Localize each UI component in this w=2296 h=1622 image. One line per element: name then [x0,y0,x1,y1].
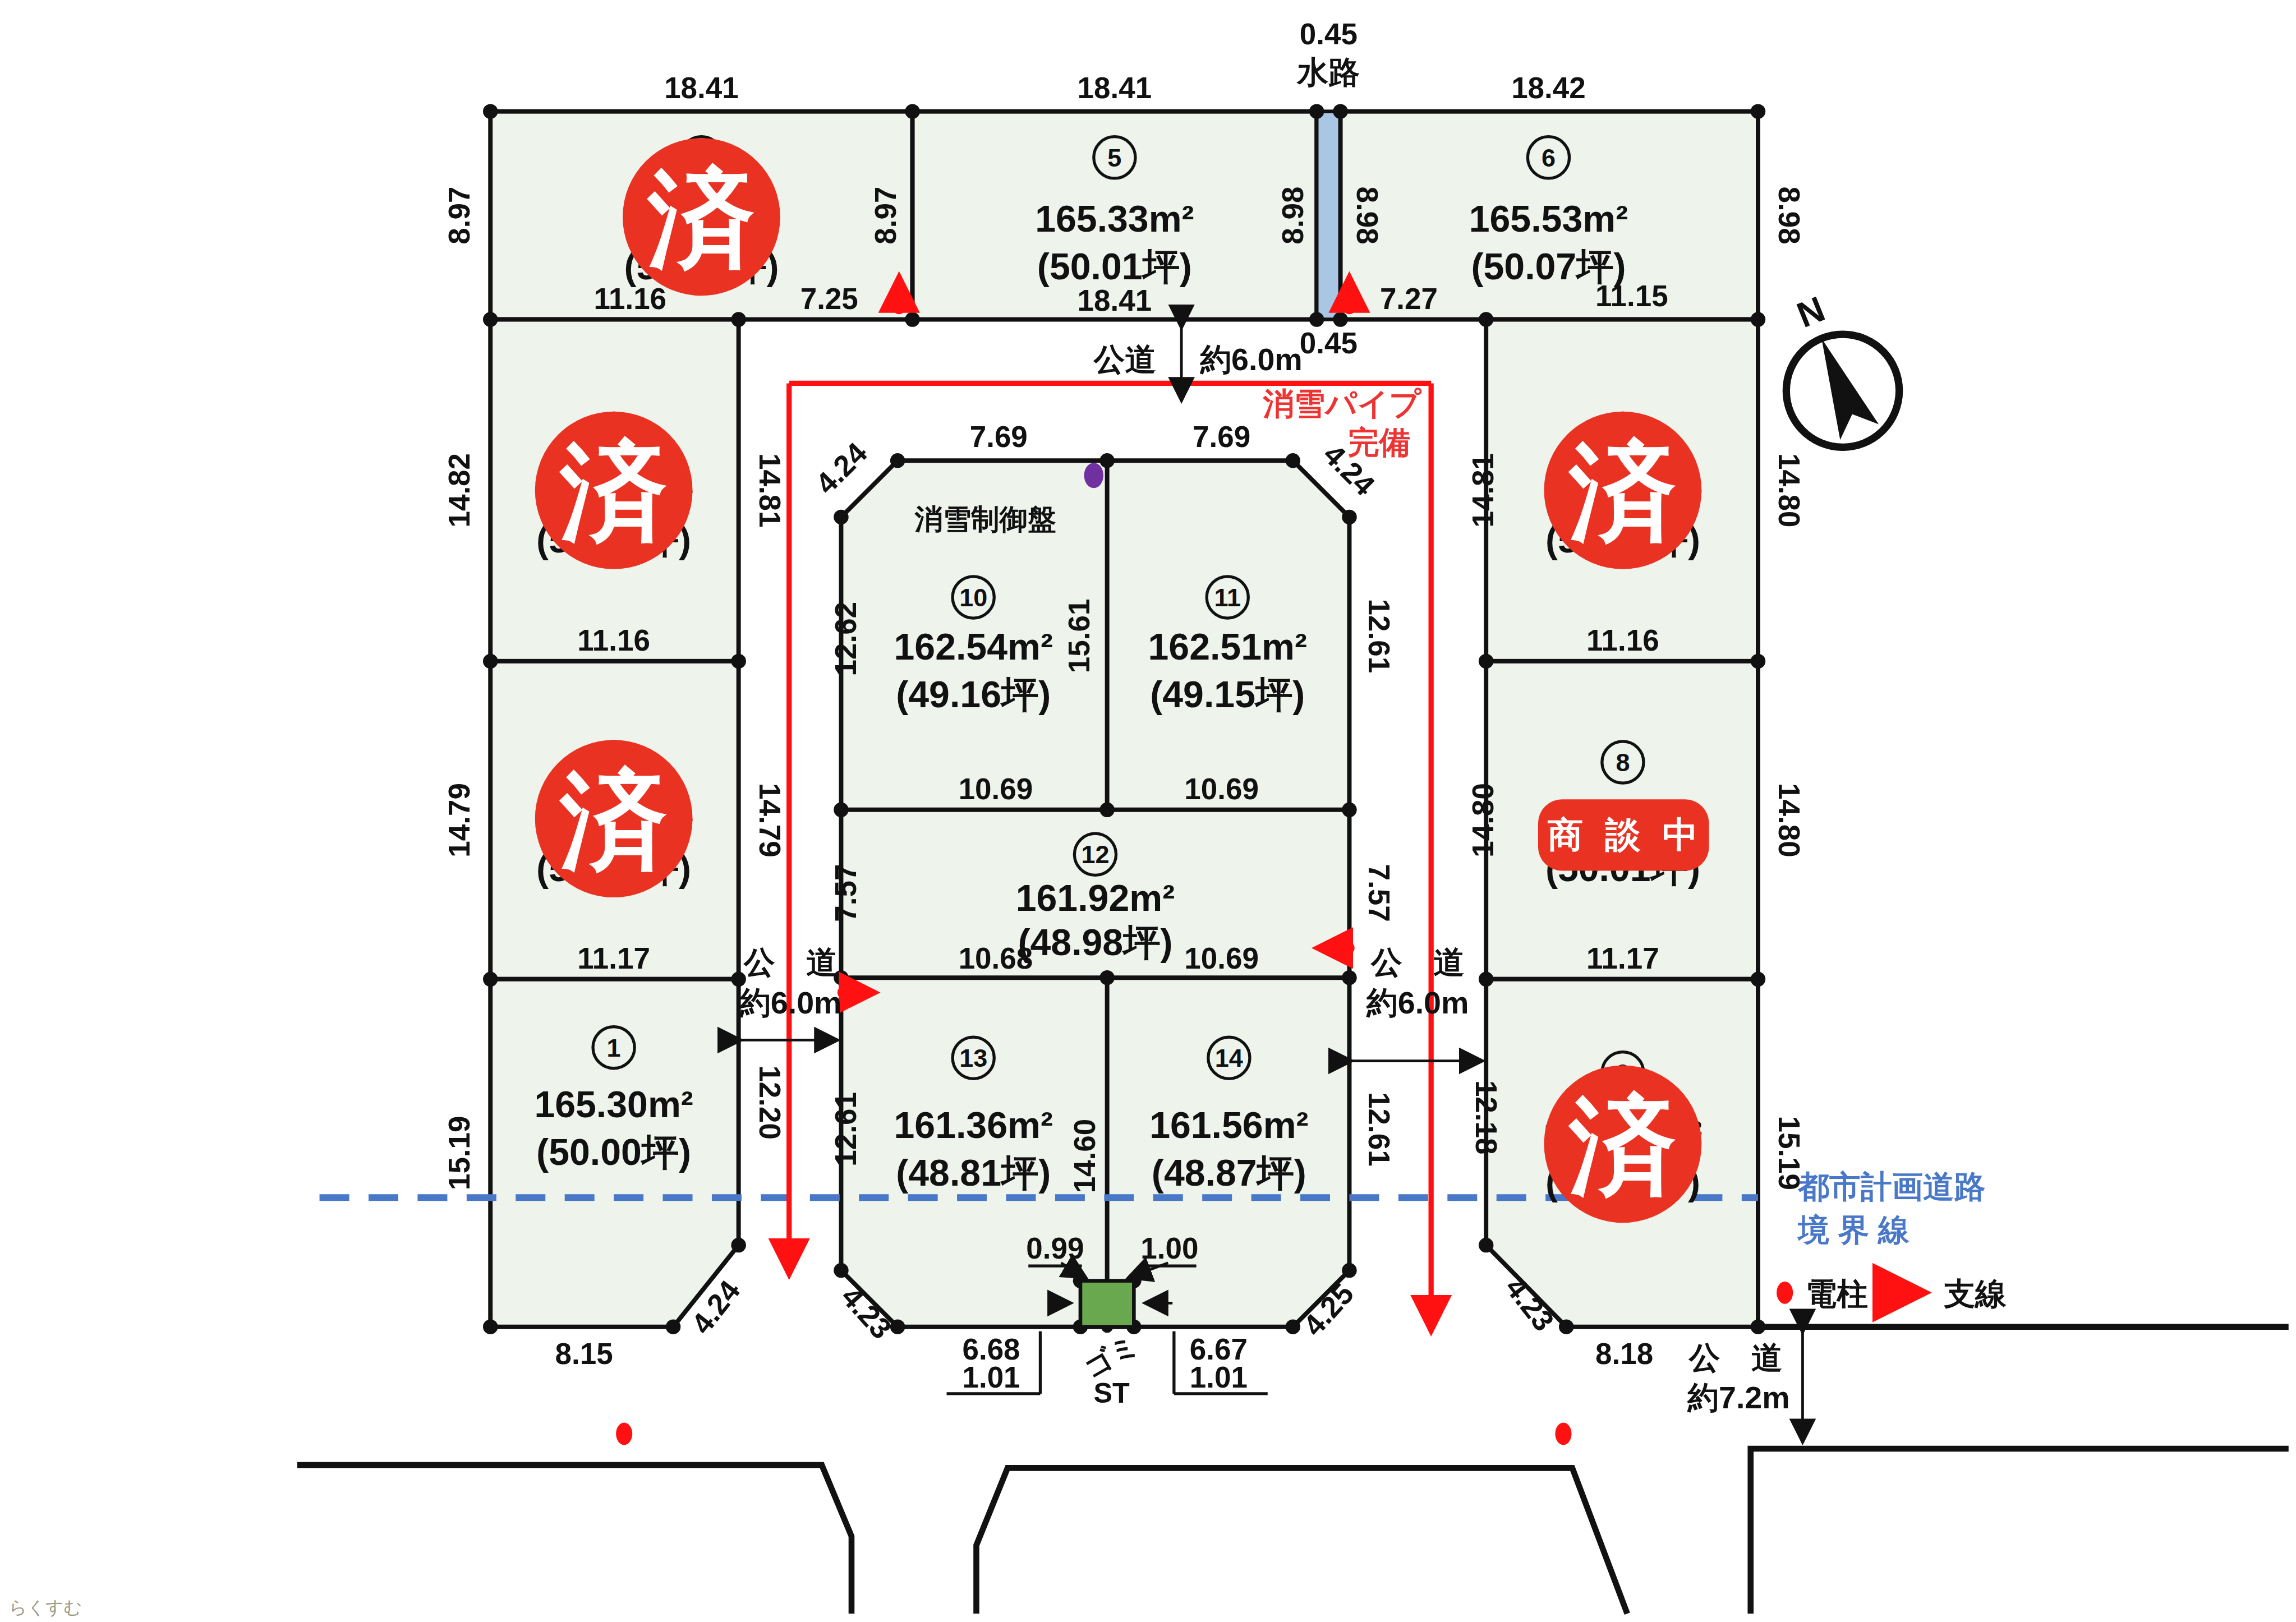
dim-lot7-bottom: 11.16 [1586,624,1659,657]
dim-lot4-bottom-b: 7.25 [800,282,858,315]
lot-5-tsubo: (50.01坪) [1037,246,1192,287]
lot-13-number: 13 [959,1044,987,1072]
dim-div45: 8.97 [869,187,902,245]
lot-14-tsubo: (48.87坪) [1152,1152,1306,1194]
trash-label-line2: ST [1093,1377,1130,1409]
dim-bottom-left-b: 1.01 [962,1361,1020,1394]
lot-11-tsubo: (49.15坪) [1150,674,1305,715]
legend-pole-icon [1777,1282,1793,1304]
dim-lot1-left: 15.19 [443,1116,476,1190]
dim-lot2-left: 14.79 [443,783,476,858]
dim-div-13-14: 14.60 [1068,1119,1101,1194]
sold-stamp-label: 済 [559,761,668,880]
dim-lot5-top: 18.41 [1078,71,1152,104]
utility-pole-icon [616,1423,632,1445]
dim-lot12-bottom-a: 10.68 [959,942,1033,975]
road-top-width: 約6.0m [1199,342,1302,377]
dim-lot6-bottom-a: 7.27 [1380,282,1438,315]
dim-lot2-bottom: 11.17 [577,942,650,975]
waterway-strip [1317,112,1340,320]
lot-5-number: 5 [1107,144,1121,172]
sold-stamp-label: 済 [1568,432,1677,551]
lot-5-area: 165.33m² [1035,198,1194,239]
dim-waterway-bottom: 0.45 [1300,327,1358,360]
road-left-width: 約6.0m [739,985,841,1020]
dim-lot9-left: 12.18 [1470,1080,1503,1155]
dim-lot4-left: 8.97 [443,187,476,245]
dim-trash-right: 1.00 [1140,1232,1198,1265]
lot-1-area: 165.30m² [534,1084,693,1125]
lot-12-area: 161.92m² [1016,877,1175,919]
lot-6-number: 6 [1542,144,1556,172]
dim-lot9-bottom: 8.18 [1595,1337,1653,1370]
planning-road-label-line2: 境 界 線 [1797,1213,1910,1247]
dim-waterway-right: 8.98 [1351,187,1384,245]
sold-stamp-label: 済 [1568,1086,1677,1205]
lot-10-area: 162.54m² [894,626,1052,667]
dim-lot3-right: 14.81 [753,453,786,528]
waterway-label: 水路 [1296,55,1360,90]
dim-lot1-bottom: 8.15 [555,1337,613,1370]
dim-lot8-left: 14.80 [1466,783,1499,858]
watermark-logo: らくすむ [9,1597,82,1618]
road-right-name: 公 道 [1370,945,1465,980]
dim-lot3-left: 14.82 [443,453,476,528]
dim-lot8-bottom: 11.17 [1586,942,1659,975]
dim-lot7-left: 14.81 [1466,453,1499,528]
lot-10-number: 10 [959,583,987,612]
dim-lot6-bottom-b: 11.15 [1595,279,1668,312]
lot-3-label: 3 165.48m² (50.06坪) 済 [534,412,693,569]
lot-subdivision-plan: 4 165.30m² (50.00坪) 済 5 165.33m² (50.01坪… [0,0,2296,1622]
sold-stamp-label: 済 [647,159,755,278]
road-left-name: 公 道 [743,945,838,980]
legend-wire-label: 支線 [1943,1277,2007,1311]
lot-12-tsubo: (48.98坪) [1018,921,1172,963]
lot-1-tsubo: (50.00坪) [536,1131,691,1173]
lot-6-area: 165.53m² [1469,198,1628,239]
dim-lot12-bottom-b: 10.69 [1184,942,1259,975]
trash-station-box [1080,1281,1134,1327]
dim-lot12-right: 7.57 [1363,864,1396,922]
utility-pole-icon [1555,1423,1571,1445]
dim-lot5-bottom: 18.41 [1078,284,1152,317]
dim-lot4-top: 18.41 [664,71,739,104]
lot-8-number: 8 [1616,748,1630,777]
dim-lot14-right: 12.61 [1363,1092,1396,1167]
dim-lot2-right: 14.79 [753,783,786,858]
lot-13-tsubo: (48.81坪) [896,1152,1051,1194]
lot-11-number: 11 [1214,583,1241,612]
dim-div-10-11: 15.61 [1062,599,1096,674]
dim-lot11-top: 7.69 [1193,420,1250,453]
planning-road-label-line1: 都市計画道路 [1797,1169,1986,1204]
dim-lot6-right: 8.98 [1773,187,1806,245]
lot-2-label: 2 165.31m² (50.00坪) 済 [534,740,693,897]
road-top-name: 公道 [1093,342,1156,377]
dim-lot11-right: 12.61 [1363,599,1396,674]
lot-7-label: 7 165.30m² (50.00坪) 済 [1543,412,1702,569]
legend-pole-label: 電柱 [1806,1277,1868,1311]
sold-stamp-label: 済 [559,432,668,551]
dim-trash-left: 0.99 [1026,1232,1084,1265]
road-bottom-width: 約7.2m [1687,1380,1789,1415]
dim-lot10-top: 7.69 [970,420,1028,453]
snow-control-panel-icon [1084,463,1103,488]
lot-11-area: 162.51m² [1148,626,1306,667]
lot-13-area: 161.36m² [894,1104,1052,1146]
lot-12-number: 12 [1081,840,1109,869]
dim-lot11-bottom: 10.69 [1184,772,1259,805]
dim-lot8-right: 14.80 [1773,783,1806,858]
dim-lot7-right: 14.80 [1773,453,1806,528]
dim-waterway-left: 8.98 [1276,187,1309,245]
dim-bottom-right-b: 1.01 [1190,1361,1248,1394]
lot-14-area: 161.56m² [1149,1104,1308,1146]
lot-1-number: 1 [607,1034,621,1062]
road-bottom-name: 公 道 [1688,1340,1783,1375]
dim-lot3-bottom: 11.16 [577,624,650,657]
dim-lot6-top: 18.42 [1511,71,1586,104]
dim-lot10-left: 12.62 [829,602,862,676]
dim-lot4-bottom-a: 11.16 [593,282,666,315]
negotiating-label: 商 談 中 [1548,814,1704,854]
dim-waterway-top: 0.45 [1300,17,1358,50]
dim-lot1-right: 12.20 [753,1065,786,1140]
snow-pipe-label-line1: 消雪パイプ [1262,386,1421,421]
road-right-width: 約6.0m [1366,985,1469,1020]
lot-10-tsubo: (49.16坪) [896,674,1051,715]
snow-control-panel-label: 消雪制御盤 [914,503,1056,535]
dim-lot10-bottom: 10.69 [959,772,1033,805]
lot-14-number: 14 [1215,1044,1243,1072]
dim-lot12-left: 7.57 [829,864,862,922]
dim-lot13-left: 12.61 [829,1092,862,1167]
